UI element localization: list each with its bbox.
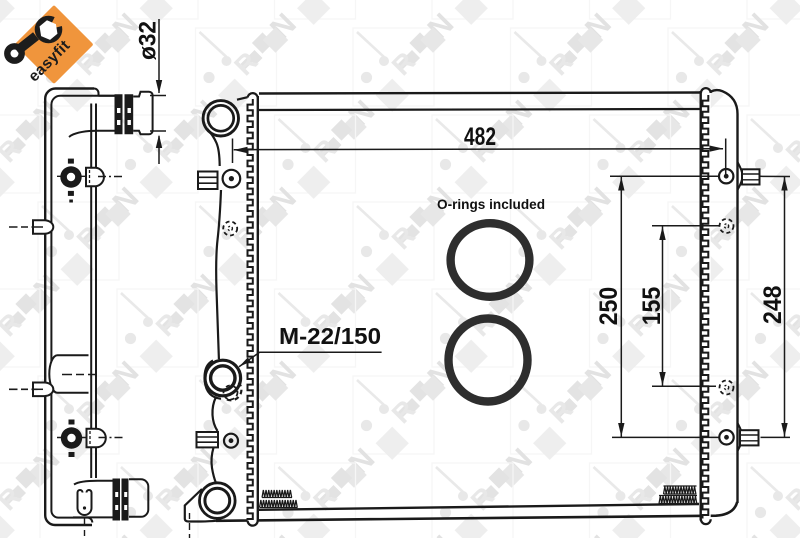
svg-text:M-22/150: M-22/150: [279, 323, 381, 349]
svg-text:155: 155: [638, 287, 666, 326]
svg-text:248: 248: [759, 285, 787, 324]
svg-text:O-rings included: O-rings included: [437, 196, 545, 212]
svg-text:250: 250: [595, 287, 623, 326]
svg-text:482: 482: [464, 123, 496, 151]
svg-text:ø32: ø32: [135, 21, 162, 60]
